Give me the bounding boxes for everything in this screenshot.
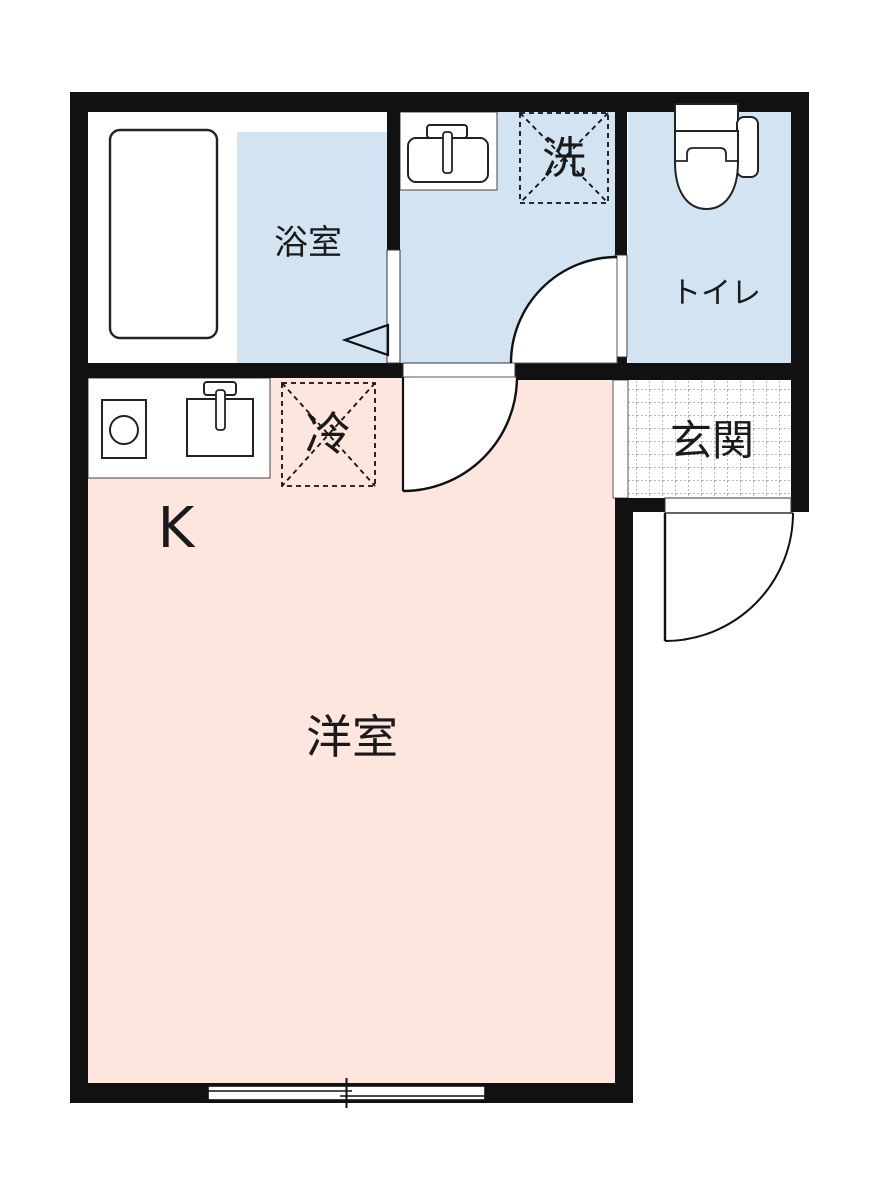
wall-bath-washroom [387, 92, 400, 250]
toilet-label: トイレ [671, 276, 761, 311]
entrance-threshold [613, 380, 628, 498]
floorplan-drawing: 浴室 洗 トイレ 玄関 冷 K 洋室 [0, 0, 880, 1200]
wall-bath-kitchen [88, 363, 403, 378]
wall-right-lower [615, 498, 633, 1103]
washroom-door-opening [403, 363, 515, 377]
stove-icon [102, 400, 146, 458]
bathtub-icon [110, 130, 217, 338]
western-room-label: 洋室 [306, 710, 398, 764]
floorplan: 浴室 洗 トイレ 玄関 冷 K 洋室 [0, 0, 880, 1200]
wall-entrance-bottom-right [791, 498, 809, 512]
entrance-door-opening [665, 498, 791, 513]
refrigerator-label: 冷 [305, 407, 351, 461]
wall-left [70, 92, 88, 1103]
wall-right-upper [791, 92, 809, 512]
washing-machine-label: 洗 [542, 133, 586, 184]
wall-washroom-toilet [615, 92, 627, 255]
wall-entrance-bottom-left [615, 498, 665, 512]
wall-hall-entrance [515, 363, 791, 380]
entrance-door-swing-icon [665, 513, 793, 641]
bathroom-label: 浴室 [274, 223, 342, 263]
kitchen-label: K [158, 496, 196, 561]
entrance-label: 玄関 [670, 416, 754, 465]
